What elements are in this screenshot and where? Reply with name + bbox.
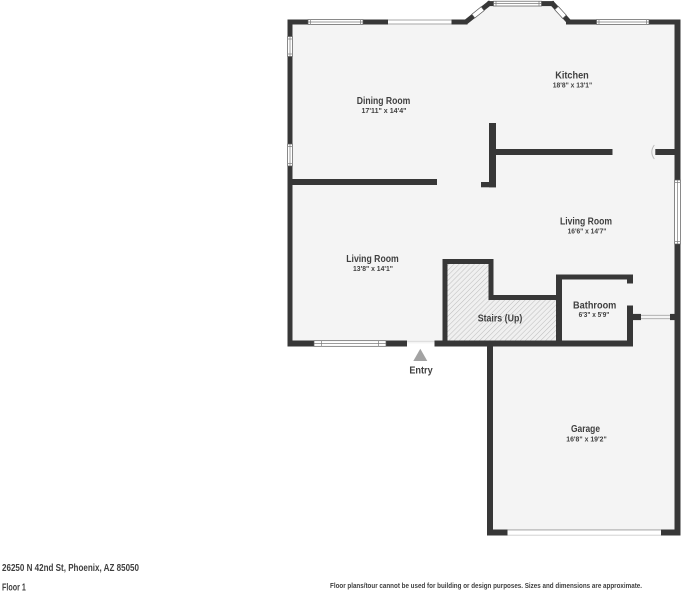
svg-text:16'8" x 19'2": 16'8" x 19'2": [566, 435, 607, 444]
svg-text:18'8" x 13'1": 18'8" x 13'1": [553, 81, 593, 90]
svg-text:26250 N 42nd St, Phoenix, AZ 8: 26250 N 42nd St, Phoenix, AZ 85050: [2, 563, 139, 574]
svg-text:Floor 1: Floor 1: [2, 583, 26, 594]
svg-text:Entry: Entry: [409, 366, 433, 377]
svg-text:Garage: Garage: [571, 424, 600, 435]
svg-text:Stairs (Up): Stairs (Up): [478, 314, 523, 325]
svg-text:Floor plans/tour cannot be use: Floor plans/tour cannot be used for buil…: [330, 581, 642, 590]
svg-text:6'3" x 5'9": 6'3" x 5'9": [579, 310, 610, 319]
svg-text:13'8" x 14'1": 13'8" x 14'1": [353, 264, 393, 273]
svg-text:17'11" x 14'4": 17'11" x 14'4": [362, 106, 407, 115]
svg-text:16'6" x 14'7": 16'6" x 14'7": [568, 227, 607, 236]
